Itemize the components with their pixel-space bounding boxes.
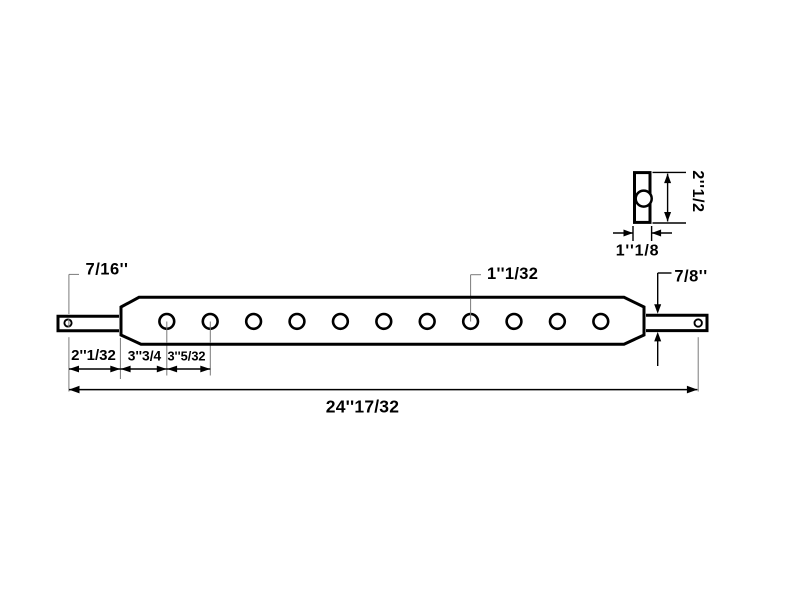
svg-text:7/8'': 7/8''	[674, 268, 707, 286]
svg-text:3''3/4: 3''3/4	[128, 349, 162, 364]
svg-text:2''1/2: 2''1/2	[689, 170, 706, 212]
svg-text:1''1/8: 1''1/8	[616, 243, 660, 260]
svg-text:7/16'': 7/16''	[86, 261, 129, 279]
svg-text:2''1/32: 2''1/32	[71, 347, 116, 364]
svg-text:3''5/32: 3''5/32	[167, 349, 205, 364]
svg-text:24''17/32: 24''17/32	[326, 397, 399, 417]
svg-text:1''1/32: 1''1/32	[487, 265, 538, 283]
